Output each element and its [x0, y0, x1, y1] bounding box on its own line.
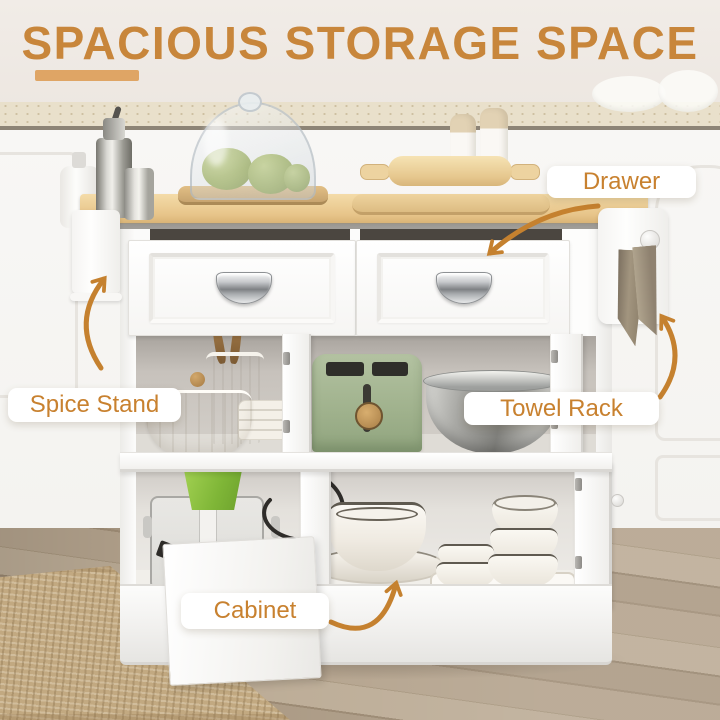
callout-cabinet-label: Cabinet: [214, 599, 297, 623]
cabinet-door-panel-right-lower: [655, 455, 720, 521]
toaster-slot: [372, 362, 408, 376]
callout-spice-stand: Spice Stand: [8, 388, 181, 422]
rolling-pin-handle: [510, 164, 540, 180]
door-hinge: [551, 350, 558, 363]
spice-stand-panel: [72, 210, 120, 294]
small-bowl: [436, 562, 496, 586]
toaster-knob: [355, 402, 383, 430]
stacked-bowl: [488, 554, 558, 586]
callout-drawer: Drawer: [547, 166, 696, 198]
title-underline: [35, 70, 139, 81]
door-hinge: [283, 420, 290, 433]
rolling-pin-handle: [360, 164, 390, 180]
cart-top-underside: [98, 223, 634, 229]
product-infographic: SPACIOUS STORAGE SPACE Drawer Spice Stan…: [0, 0, 720, 720]
callout-drawer-label: Drawer: [583, 170, 660, 194]
callout-cabinet: Cabinet: [181, 593, 329, 629]
cutting-board: [352, 194, 550, 215]
toaster-slot: [326, 362, 364, 376]
open-drawer-gap-right: [360, 229, 562, 240]
cloche-knob: [238, 92, 262, 112]
door-hinge: [283, 352, 290, 365]
door-knob: [611, 494, 624, 507]
decor-plate: [592, 76, 666, 112]
page-title: SPACIOUS STORAGE SPACE: [0, 16, 720, 70]
wooden-honey-dipper: [190, 372, 205, 387]
door-hinge: [575, 478, 582, 491]
callout-towel-rack: Towel Rack: [464, 392, 659, 425]
rolling-pin: [388, 156, 512, 186]
callout-spice-stand-label: Spice Stand: [30, 393, 159, 417]
shelf-board: [120, 452, 612, 472]
decor-plate: [658, 70, 718, 112]
door-hinge: [575, 556, 582, 569]
open-drawer-gap-left: [150, 229, 350, 240]
callout-towel-rack-label: Towel Rack: [500, 397, 623, 421]
oil-dispenser-bottle: [124, 168, 154, 220]
